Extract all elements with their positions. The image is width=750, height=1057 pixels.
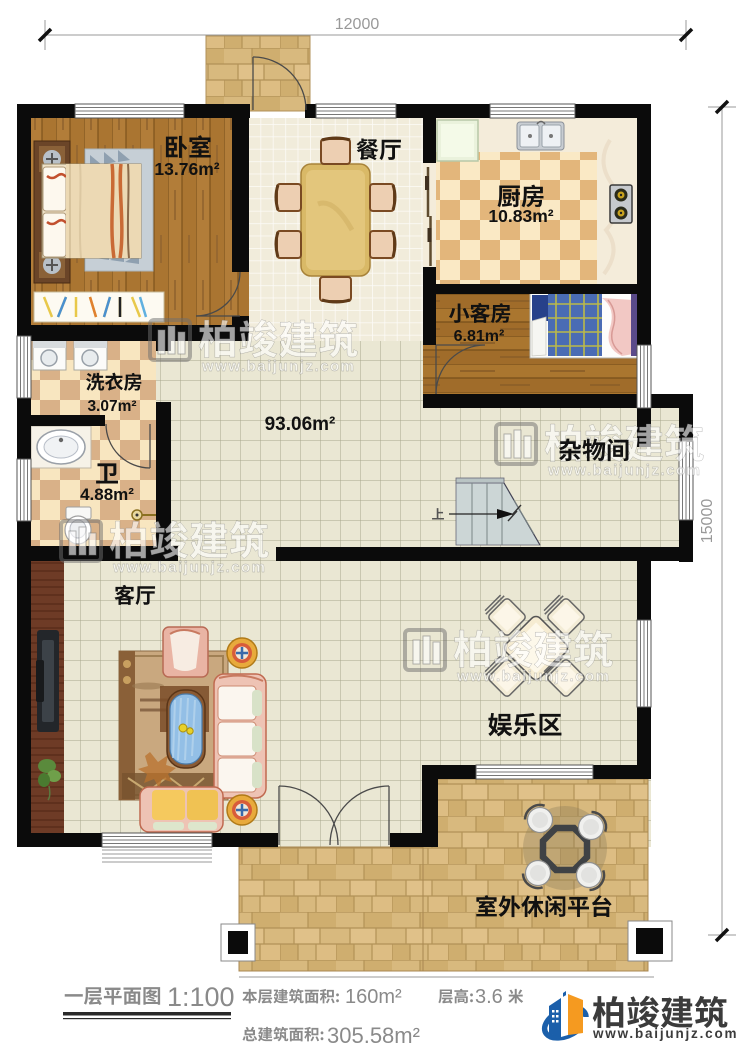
svg-text:www.baijunjz.com: www.baijunjz.com bbox=[201, 358, 355, 375]
svg-text:3.6: 3.6 bbox=[475, 986, 503, 1008]
svg-text:10.83m²: 10.83m² bbox=[488, 206, 553, 226]
svg-text:www.baijunjz.com: www.baijunjz.com bbox=[547, 462, 701, 479]
svg-text:12000: 12000 bbox=[335, 16, 380, 33]
svg-text:www.baijunjz.com: www.baijunjz.com bbox=[456, 668, 610, 685]
svg-text:4.88m²: 4.88m² bbox=[80, 485, 134, 504]
svg-text:www.baijunjz.com: www.baijunjz.com bbox=[112, 559, 266, 576]
svg-text:13.76m²: 13.76m² bbox=[154, 159, 219, 179]
svg-text:3.07m²: 3.07m² bbox=[87, 398, 136, 415]
svg-text:6.81m²: 6.81m² bbox=[454, 328, 505, 345]
svg-text:www.baijunjz.com: www.baijunjz.com bbox=[592, 1026, 738, 1041]
svg-text:1:100: 1:100 bbox=[167, 982, 235, 1012]
svg-text:15000: 15000 bbox=[699, 499, 716, 544]
svg-text:160m²: 160m² bbox=[345, 986, 402, 1008]
svg-text:93.06m²: 93.06m² bbox=[265, 414, 336, 435]
svg-text:305.58m²: 305.58m² bbox=[327, 1023, 420, 1048]
